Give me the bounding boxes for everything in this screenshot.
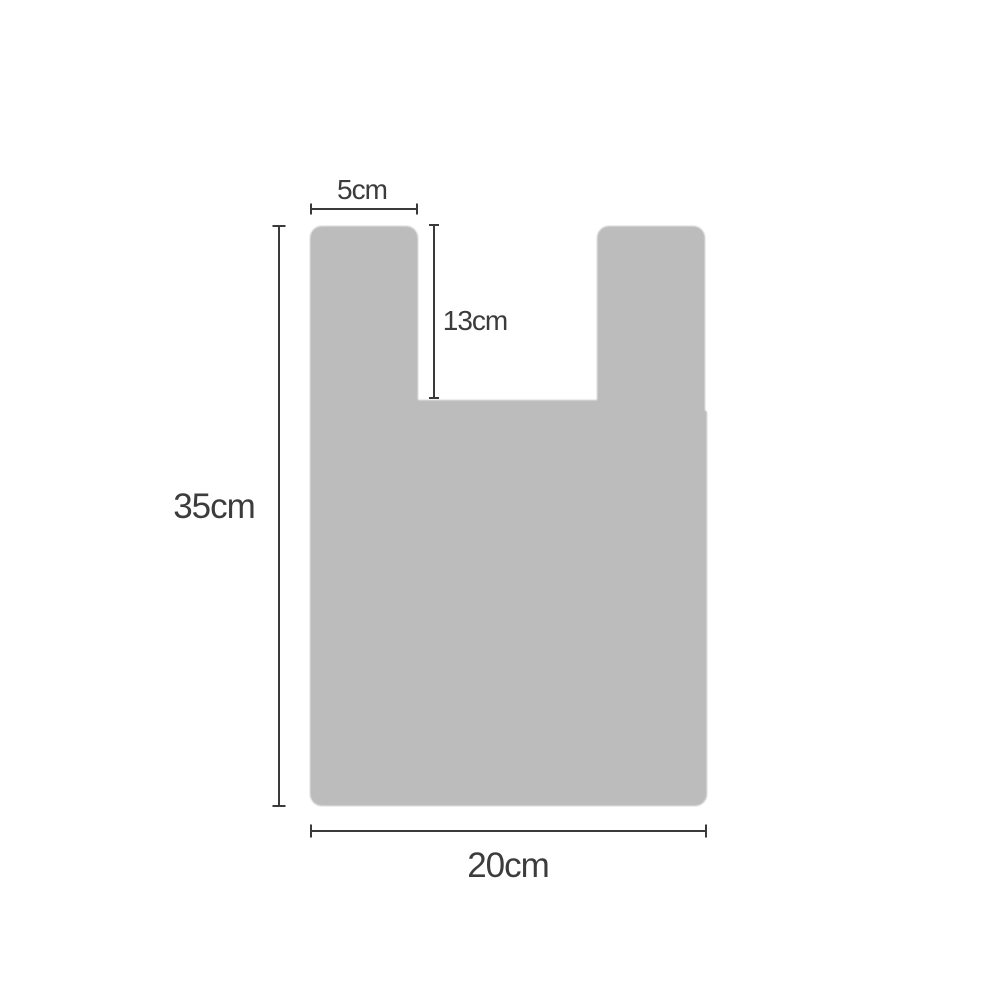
svg-text:13cm: 13cm (443, 305, 507, 336)
svg-text:20cm: 20cm (467, 846, 549, 885)
svg-text:5cm: 5cm (337, 174, 387, 205)
svg-text:35cm: 35cm (173, 487, 255, 526)
